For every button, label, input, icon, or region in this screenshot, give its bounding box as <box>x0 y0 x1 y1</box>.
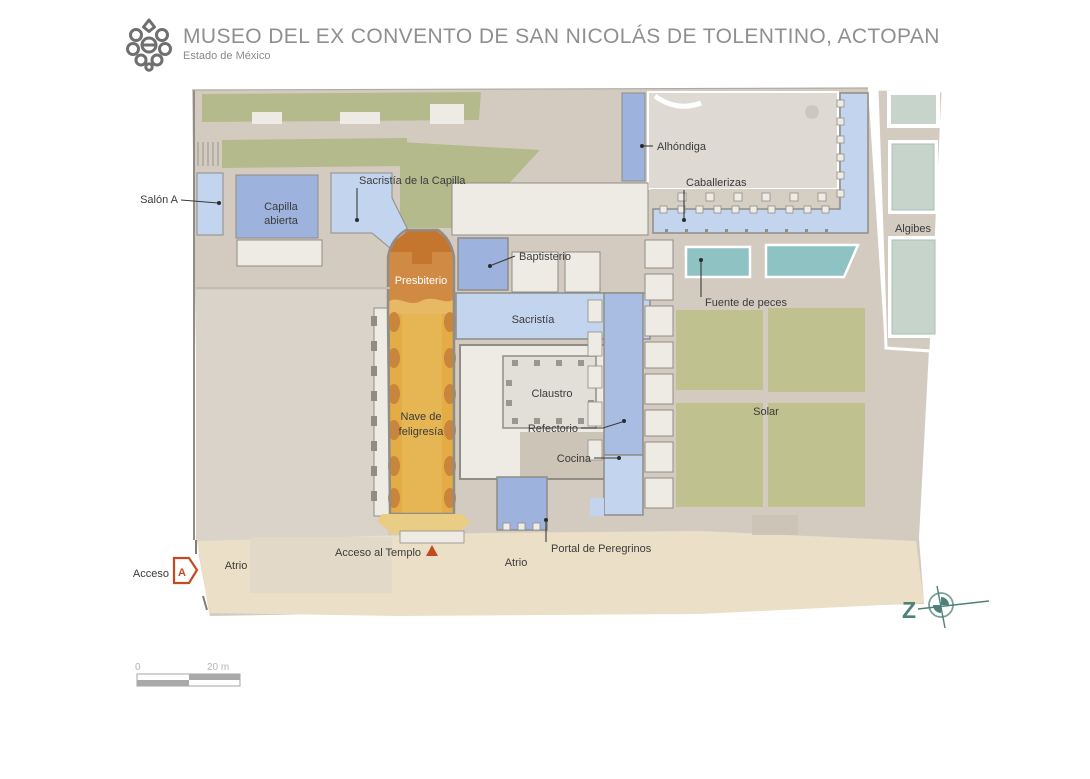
garden-strip <box>222 138 407 168</box>
scale-start-label: 0 <box>135 662 141 673</box>
church-steps <box>400 531 464 543</box>
pool-fuente-right <box>766 245 858 277</box>
atrio-patch <box>250 537 392 593</box>
label-cocina: Cocina <box>557 453 592 465</box>
logo-petal <box>152 55 162 65</box>
acceso-entrance-icon: A <box>174 558 197 583</box>
label-atrio-right: Atrio <box>505 557 528 569</box>
page-title: MUSEO DEL EX CONVENTO DE SAN NICOLÁS DE … <box>183 25 940 49</box>
label-portal-peregrinos: Portal de Peregrinos <box>551 543 652 555</box>
west-range-rooms <box>237 240 322 266</box>
label-presbiterio: Presbiterio <box>395 275 448 287</box>
scale-end-label: 20 m <box>207 662 229 673</box>
label-baptisterio: Baptisterio <box>519 251 571 263</box>
logo-petal <box>157 30 168 41</box>
label-alhondiga: Alhóndiga <box>657 141 707 153</box>
presbiterio-altar <box>412 250 432 264</box>
logo-top-spike <box>144 20 155 32</box>
inah-logo-icon <box>124 18 174 72</box>
label-fuente-peces: Fuente de peces <box>705 297 787 309</box>
label-caballerizas: Caballerizas <box>686 177 747 189</box>
label-salon-a: Salón A <box>140 194 179 206</box>
label-atrio-left: Atrio <box>225 560 248 572</box>
logo-petal <box>128 44 139 55</box>
label-sacristia-capilla: Sacristía de la Capilla <box>359 175 466 187</box>
page-header: MUSEO DEL EX CONVENTO DE SAN NICOLÁS DE … <box>124 18 940 72</box>
label-solar: Solar <box>753 406 779 418</box>
label-claustro: Claustro <box>532 388 573 400</box>
label-sacristia: Sacristía <box>512 314 556 326</box>
acceso-icon-letter: A <box>178 567 186 579</box>
label-capilla-abierta-1: Capilla <box>264 201 299 213</box>
room-portal-peregrinos <box>497 477 547 530</box>
floor-plan-map: Salón A Capilla abierta Sacristía de la … <box>0 0 1090 779</box>
courtyard-well <box>805 105 819 119</box>
label-nave-1: Nave de <box>401 411 442 423</box>
compass-north-letter: Z <box>902 597 916 623</box>
label-algibes: Algibes <box>895 223 932 235</box>
label-acceso: Acceso <box>133 568 169 580</box>
scale-bar: 0 20 m <box>135 662 240 686</box>
logo-petal <box>136 55 146 65</box>
label-nave-2: feligresía <box>399 426 445 438</box>
logo-bottom-circle <box>146 64 152 70</box>
north-range-rooms <box>452 183 648 235</box>
solar-south-structure <box>752 515 798 535</box>
east-wing-rooms <box>645 240 673 508</box>
portal-columns <box>503 523 540 530</box>
corridor-jog <box>590 498 604 516</box>
room-alhondiga <box>622 93 645 181</box>
room-baptisterio <box>458 238 508 290</box>
logo-petal <box>131 30 142 41</box>
logo-petal <box>160 44 171 55</box>
label-refectorio: Refectorio <box>528 423 578 435</box>
room-cocina-corridor <box>604 455 643 515</box>
room-refectorio <box>604 293 643 455</box>
pool-fuente-left <box>686 247 750 277</box>
page-subtitle: Estado de México <box>183 50 940 62</box>
west-court <box>196 290 388 542</box>
label-acceso-templo: Acceso al Templo <box>335 547 421 559</box>
label-capilla-abierta-2: abierta <box>264 215 299 227</box>
